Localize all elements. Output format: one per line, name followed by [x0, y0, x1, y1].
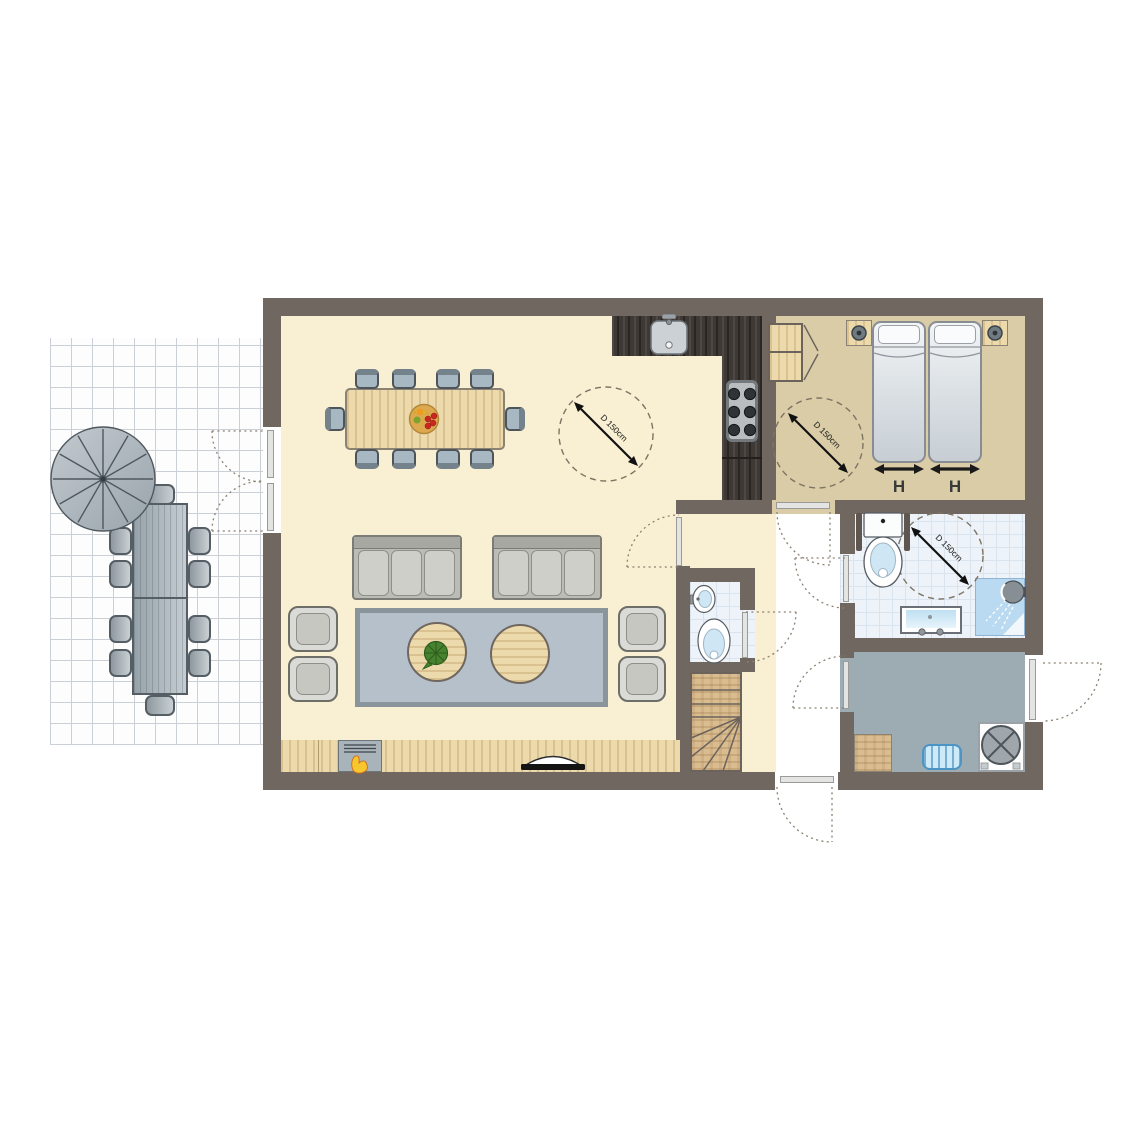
terrace-chair: [109, 527, 132, 555]
terrace-chair: [109, 560, 132, 588]
terrace-chair: [145, 484, 175, 505]
floor-plan: D 150cm D 150cm D 150cm H H: [0, 0, 1145, 1145]
bed-pillow: [934, 325, 976, 344]
sofa-back: [494, 537, 600, 549]
wall-south-right: [838, 772, 1043, 790]
terrace-chair: [109, 615, 132, 643]
bathroom-door-leaf: [843, 555, 849, 602]
front-door-swing: [777, 787, 832, 842]
wall-utility-west-upper: [840, 652, 854, 658]
wc-door-leaf: [742, 612, 748, 658]
terrace-chair: [188, 527, 211, 555]
wall-wc-north: [676, 568, 755, 582]
wall-bathroom-utility: [840, 638, 1025, 652]
terrace-chair: [109, 649, 132, 677]
staircase: [690, 672, 742, 772]
bedroom-door-swing: [777, 512, 830, 565]
wall-wc-south: [676, 662, 755, 672]
wall-south-left: [263, 772, 775, 790]
wall-east-lower: [1025, 722, 1043, 790]
sofa: [352, 535, 462, 600]
shower: [975, 578, 1025, 636]
sofa-cushion: [564, 550, 595, 596]
dining-chair: [470, 449, 494, 469]
terrace-door-leaf: [267, 430, 274, 478]
terrace-table-divider: [133, 597, 187, 599]
sofa-cushion: [498, 550, 529, 596]
bedroom-door-leaf: [776, 502, 830, 509]
sofa-cushion: [391, 550, 422, 596]
wall-west-lower: [263, 533, 281, 790]
utility-hall-door-swing: [793, 656, 845, 708]
sofa-cushion: [531, 550, 562, 596]
wall-west-upper: [263, 298, 281, 427]
armchair: [618, 656, 666, 702]
terrace-chair: [188, 649, 211, 677]
doormat: [922, 744, 962, 770]
fireplace-stove: [338, 740, 382, 772]
kitchen-counter-seam: [722, 457, 762, 459]
dining-table: [345, 388, 505, 450]
armchair-cushion: [296, 663, 330, 695]
armchair: [288, 606, 338, 652]
terrace-chair: [188, 615, 211, 643]
coffee-table-round: [407, 622, 467, 682]
bed-pillow: [878, 325, 920, 344]
dining-chair: [355, 369, 379, 389]
bathroom-vanity-basin: [906, 610, 956, 628]
dining-chair: [392, 449, 416, 469]
living-room-door-leaf: [676, 517, 682, 566]
utility-hall-door-leaf: [843, 661, 849, 709]
dining-chair: [505, 407, 525, 431]
dining-chair: [436, 449, 460, 469]
dining-chair: [325, 407, 345, 431]
washing-machine: [978, 722, 1025, 772]
dining-chair: [392, 369, 416, 389]
dining-chair: [436, 369, 460, 389]
nightstand: [846, 320, 872, 346]
armchair-cushion: [296, 613, 330, 645]
cooktop: [726, 380, 758, 442]
sofa: [492, 535, 602, 600]
armchair-cushion: [626, 663, 658, 695]
coffee-table-round: [490, 624, 550, 684]
terrace-chair: [145, 695, 175, 716]
sideboard-divider: [318, 740, 319, 772]
wall-bedroom-south-left: [676, 500, 772, 514]
wall-bathroom-west-upper: [840, 514, 855, 554]
armchair-cushion: [626, 613, 658, 645]
wall-east-upper: [1025, 298, 1043, 655]
wardrobe-shelf: [770, 351, 801, 353]
sofa-cushion: [424, 550, 455, 596]
dining-chair: [470, 369, 494, 389]
rug: [355, 608, 608, 707]
wall-north: [263, 298, 1043, 316]
wall-bedroom-south-right: [835, 500, 1025, 514]
armchair: [288, 656, 338, 702]
bathroom-door-swing: [795, 558, 845, 608]
armchair: [618, 606, 666, 652]
utility-exterior-door-leaf: [1029, 659, 1036, 720]
utility-wood-cabinet: [854, 734, 892, 772]
dining-chair: [355, 449, 379, 469]
terrace-table: [132, 503, 188, 695]
terrace-chair: [188, 560, 211, 588]
wall-utility-west-lower: [840, 712, 854, 772]
nightstand: [982, 320, 1008, 346]
wall-wc-east-upper: [740, 582, 755, 610]
front-door-leaf: [780, 776, 834, 783]
sofa-back: [354, 537, 460, 549]
sofa-cushion: [358, 550, 389, 596]
utility-exterior-door-swing: [1043, 663, 1101, 721]
terrace-door-leaf: [267, 483, 274, 531]
